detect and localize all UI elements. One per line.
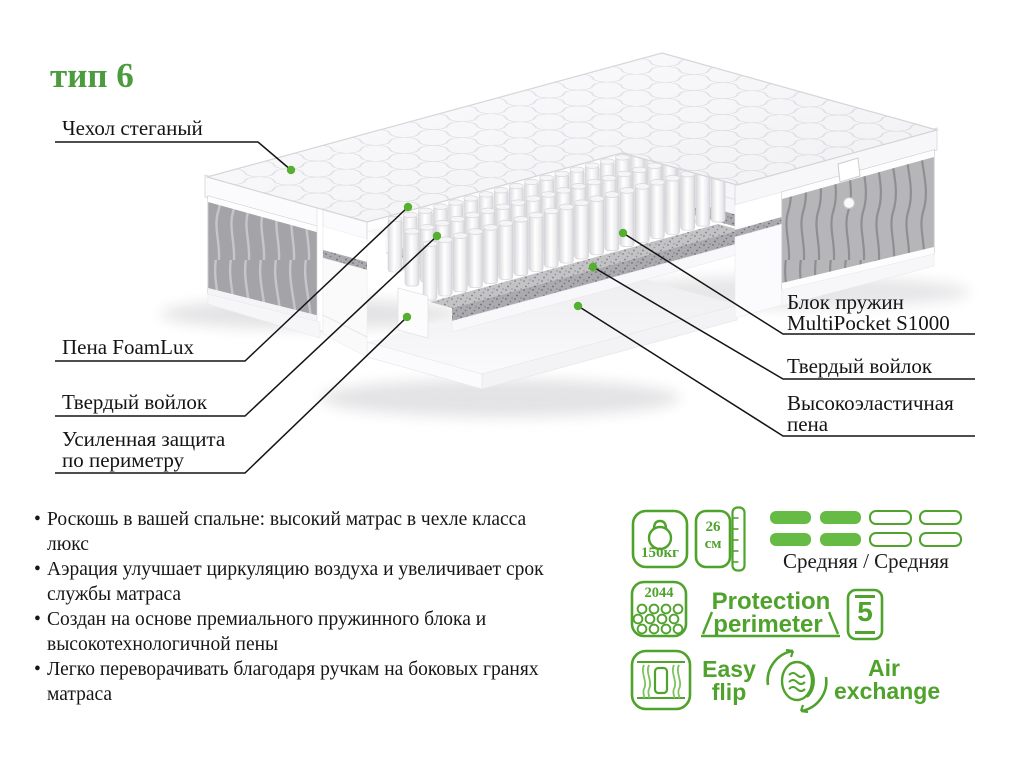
bullet-item: Легко переворачивать благодаря ручкам на… (34, 657, 564, 707)
air-exchange-icon (763, 647, 831, 715)
protection-perimeter-icon (695, 605, 850, 643)
callout-perimeter-label: Усиленная защита по периметру (62, 429, 225, 471)
callout-perimeter-line2: по периметру (62, 450, 225, 471)
callout-springs-line1: Блок пружин (787, 292, 950, 313)
infographic-page: тип 6 Чехол стеганый Пена FoamLux Тверды… (0, 0, 1024, 768)
callout-springs-line2: MultiPocket S1000 (787, 313, 950, 334)
callout-felt-left-label: Твердый войлок (62, 392, 207, 413)
ruler-icon (730, 505, 748, 573)
firmness-scale-icon (767, 509, 967, 551)
height-value-block: 26 см (694, 519, 732, 553)
air-exchange-line2: exchange (834, 678, 934, 705)
feature-bullet-list: Роскошь в вашей спальне: высокий матрас … (34, 507, 564, 707)
height-value: 26 (694, 519, 732, 536)
callout-elastic-line1: Высокоэластичная (787, 393, 954, 414)
easy-flip-line2: flip (698, 679, 760, 706)
max-weight-value: 150кг (633, 545, 687, 562)
bullet-item: Роскошь в вашей спальне: высокий матрас … (34, 507, 564, 557)
callout-springs-label: Блок пружин MultiPocket S1000 (787, 292, 950, 334)
vent-button (844, 198, 855, 209)
callout-perimeter-line1: Усиленная защита (62, 429, 225, 450)
height-unit: см (694, 536, 732, 553)
callout-felt-right-label: Твердый войлок (787, 356, 932, 377)
page-title: тип 6 (50, 56, 134, 96)
firmness-value: Средняя / Средняя (767, 549, 965, 574)
callout-elastic-label: Высокоэластичная пена (787, 393, 954, 435)
perimeter-foam-frame (398, 288, 428, 338)
callout-elastic-line2: пена (787, 414, 954, 435)
bullet-item: Создан на основе премиального пружинного… (34, 607, 564, 657)
easy-flip-icon (630, 649, 692, 711)
callout-cover-label: Чехол стеганый (62, 118, 203, 139)
callout-foam-label: Пена FoamLux (62, 337, 194, 358)
warranty-years-value: 5 (846, 597, 884, 627)
springs-count-value: 2044 (630, 585, 688, 602)
bullet-item: Аэрация улучшает циркуляцию воздуха и ув… (34, 557, 564, 607)
